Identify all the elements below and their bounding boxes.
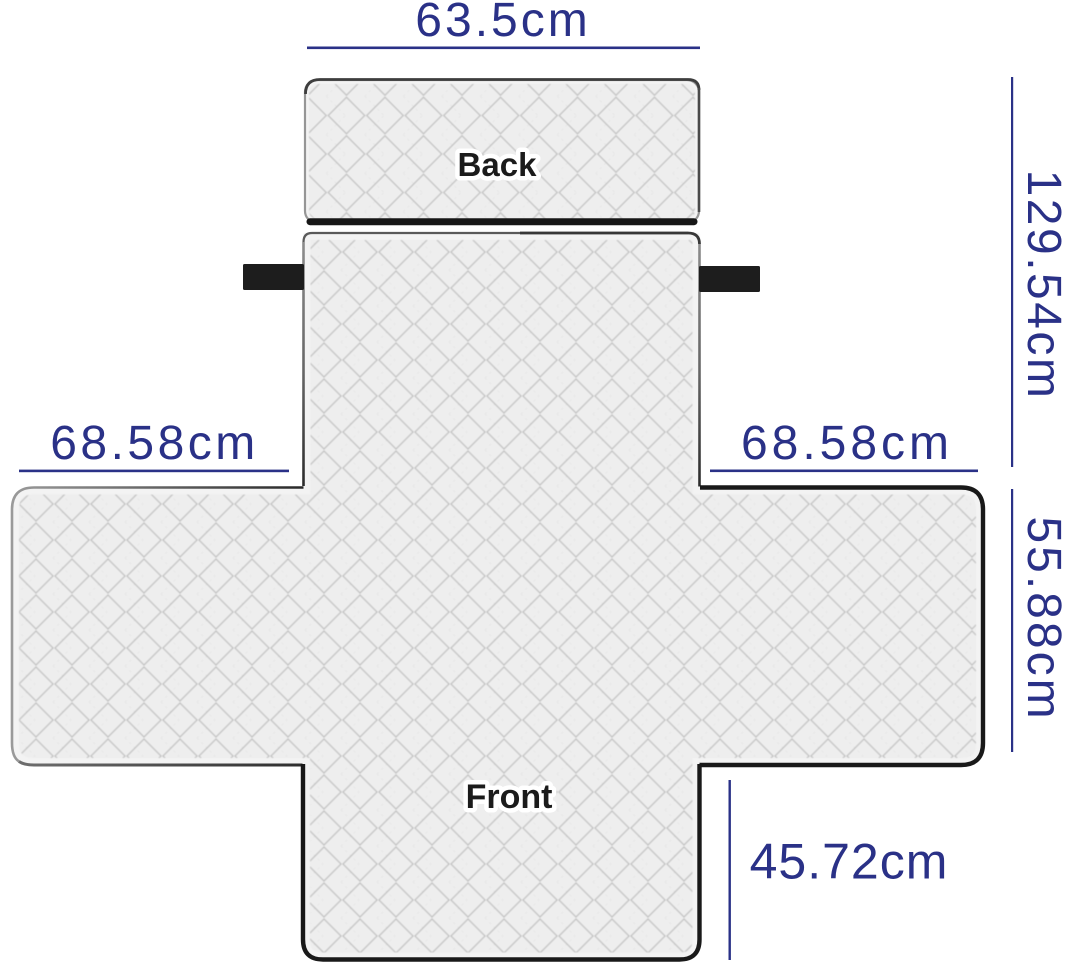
svg-text:55.88cm: 55.88cm	[1017, 516, 1067, 721]
svg-text:Front: Front	[466, 778, 553, 816]
svg-text:68.58cm: 68.58cm	[50, 417, 259, 470]
svg-text:63.5cm: 63.5cm	[415, 0, 590, 47]
svg-text:68.58cm: 68.58cm	[741, 417, 953, 470]
svg-text:Back: Back	[458, 146, 538, 183]
svg-text:45.72cm: 45.72cm	[750, 834, 949, 890]
svg-text:129.54cm: 129.54cm	[1017, 170, 1067, 401]
